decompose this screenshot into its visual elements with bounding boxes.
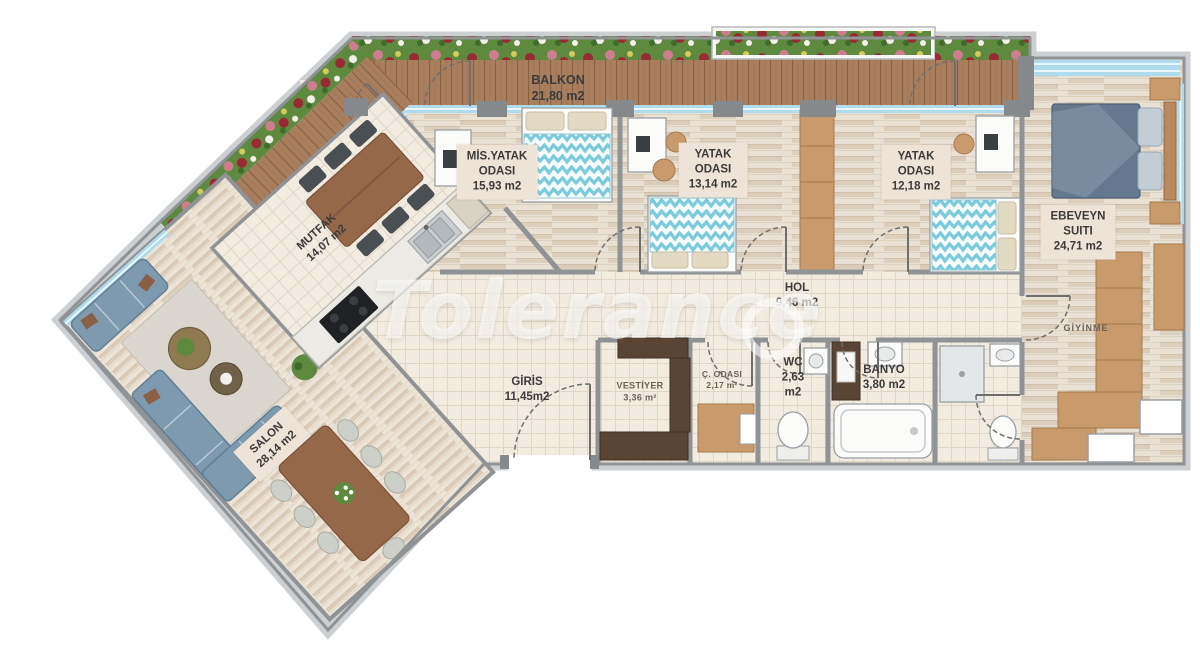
room-label-wc: WC 2,63 m2 xyxy=(782,356,804,401)
room-area: 13,14 m2 xyxy=(689,177,738,192)
room-label-ebeveyn: EBEVEYN SUITI 24,71 m2 xyxy=(1041,205,1116,260)
room-name: WC xyxy=(782,356,804,371)
bedroom-wardrobe xyxy=(800,110,834,272)
room-label-hol: HOL 9,46 m2 xyxy=(776,281,818,311)
room-name: BALKON xyxy=(531,72,584,88)
room-label-c-odasi: Ç. ODASI 2,17 m² xyxy=(702,369,742,391)
wardrobe-icon xyxy=(1154,244,1184,330)
room-label-giyinme: GİYİNME xyxy=(1063,323,1108,335)
room-area: 9,46 m2 xyxy=(776,296,818,311)
room-name: Ç. ODASI xyxy=(702,369,742,380)
room-label-mis-yatak: MİS.YATAK ODASI 15,93 m2 xyxy=(457,145,538,200)
floor-plan: BALKON 21,80 m2 MİS.YATAK ODASI 15,93 m2… xyxy=(0,0,1200,654)
room-area: 15,93 m2 xyxy=(467,179,528,194)
room-area: 24,71 m2 xyxy=(1051,239,1106,254)
room-name: MİS.YATAK xyxy=(467,150,528,165)
room-name: HOL xyxy=(776,281,818,296)
toilet-icon xyxy=(988,416,1018,460)
bed-icon xyxy=(648,196,736,272)
room-name: ODASI xyxy=(689,163,738,178)
room-area: m2 xyxy=(782,385,804,400)
room-name: YATAK xyxy=(892,150,941,165)
room-label-yatak2: YATAK ODASI 12,18 m2 xyxy=(882,145,951,200)
nightstand-icon xyxy=(1150,202,1180,224)
bed-icon xyxy=(930,198,1020,272)
room-name: BANYO xyxy=(863,363,905,378)
room-label-yatak1: YATAK ODASI 13,14 m2 xyxy=(679,143,748,198)
room-name: ODASI xyxy=(892,165,941,180)
room-label-balkon: BALKON 21,80 m2 xyxy=(531,72,584,105)
room-area: 3,80 m2 xyxy=(863,378,905,393)
room-label-vestiyer: VESTİYER 3,36 m² xyxy=(617,380,664,403)
floor-plan-drawing xyxy=(0,0,1200,654)
bathtub-icon xyxy=(834,404,932,458)
room-area: 2,17 m² xyxy=(702,380,742,391)
room-area: 3,36 m² xyxy=(617,392,664,404)
shaft xyxy=(1140,400,1182,434)
room-area: 21,80 m2 xyxy=(531,88,584,104)
room-label-banyo: BANYO 3,80 m2 xyxy=(863,363,905,393)
room-area: 2,63 xyxy=(782,371,804,386)
toilet-icon xyxy=(777,412,809,460)
room-name: GİRİS xyxy=(505,375,550,390)
room-name: EBEVEYN xyxy=(1051,210,1106,225)
room-name: ODASI xyxy=(467,165,528,180)
rug-icon xyxy=(653,159,675,181)
room-name: VESTİYER xyxy=(617,380,664,392)
shaft xyxy=(1088,434,1134,462)
room-name: SUITI xyxy=(1051,225,1106,240)
room-name: YATAK xyxy=(689,148,738,163)
room-area: 11,45m2 xyxy=(505,390,550,405)
chair-icon xyxy=(954,134,974,154)
room-label-giris: GİRİS 11,45m2 xyxy=(505,375,550,405)
c-odasi-contents xyxy=(698,404,756,452)
room-name: GİYİNME xyxy=(1063,323,1108,335)
nightstand-icon xyxy=(1150,78,1180,100)
room-area: 12,18 m2 xyxy=(892,179,941,194)
